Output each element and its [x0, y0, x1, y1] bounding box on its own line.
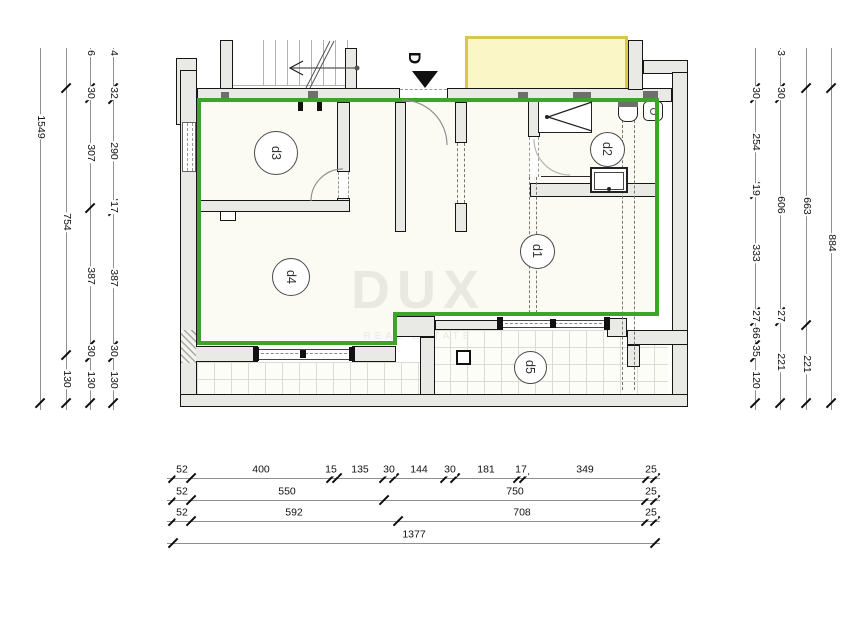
- dimension-label: 550: [277, 486, 297, 498]
- shower-tray: [538, 100, 592, 133]
- sliding-door-cap: [300, 350, 306, 358]
- dimension-label: 6: [84, 49, 96, 57]
- wall: [337, 102, 350, 172]
- stair-tread: [299, 40, 300, 86]
- dimension-label: 32: [107, 86, 119, 100]
- dimension-label: 25: [644, 464, 658, 476]
- sliding-door-cap: [349, 347, 355, 361]
- dimension-label: 30: [84, 344, 96, 358]
- dimension-label: 1549: [34, 114, 46, 139]
- dimension-label: 592: [284, 507, 304, 519]
- dimension-label: 130: [107, 370, 119, 390]
- room-label-d2: d2: [590, 132, 625, 167]
- dimension-label: 333: [749, 243, 761, 263]
- entrance-arrow-icon: [412, 71, 438, 88]
- dimension-label: 25: [644, 507, 658, 519]
- terrace-column: [456, 350, 471, 365]
- dimension-label: 15: [324, 464, 338, 476]
- dimension-chain-line: [167, 478, 660, 479]
- entrance-label: D: [404, 52, 424, 64]
- apartment-boundary: [197, 98, 201, 345]
- room-label-text: d1: [530, 244, 544, 258]
- wall: [455, 203, 467, 232]
- dimension-label: 19: [749, 183, 761, 197]
- wall: [220, 40, 233, 90]
- room-label-d1: d1: [520, 234, 555, 269]
- dimension-label: 181: [476, 464, 496, 476]
- dimension-label: 349: [575, 464, 595, 476]
- toilet-cistern: [618, 102, 638, 107]
- door-opening: [338, 172, 349, 198]
- dimension-chain-line: [167, 543, 660, 544]
- watermark-title: DUX: [346, 263, 491, 317]
- wall-section-hatch: [181, 330, 196, 363]
- dimension-label: 27: [749, 309, 761, 323]
- counter-line: [541, 176, 591, 177]
- dimension-label: 221: [800, 354, 812, 374]
- dimension-chain-line: [167, 500, 660, 501]
- dimension-label: 1377: [401, 529, 426, 541]
- apartment-boundary: [655, 98, 659, 316]
- dimension-label: 30: [84, 86, 96, 100]
- room-label-d5: d5: [514, 351, 547, 384]
- dimension-label: 30: [774, 86, 786, 100]
- dimension-label: 130: [84, 370, 96, 390]
- wall: [435, 320, 500, 330]
- dimension-label: 663: [800, 196, 812, 216]
- dashed-shaft-line: [464, 143, 465, 203]
- dimension-chain-line: [167, 521, 660, 522]
- dimension-label: 606: [774, 195, 786, 215]
- wall: [345, 48, 357, 90]
- dimension-label: 708: [512, 507, 532, 519]
- dimension-label: 884: [825, 233, 837, 253]
- dimension-label: 221: [774, 352, 786, 372]
- apartment-boundary: [197, 341, 397, 345]
- dimension-label: 30: [107, 344, 119, 358]
- bathroom-shelf: [643, 91, 658, 98]
- dimension-chain-line: [40, 48, 41, 410]
- floor-plan-canvas: DUX REAL ESTATE: [0, 0, 841, 631]
- terrace-tiles: [197, 362, 420, 395]
- window: [182, 122, 196, 172]
- wall: [607, 318, 627, 337]
- room-label-text: d2: [600, 142, 614, 156]
- stair-tread: [335, 40, 336, 86]
- dimension-label: 387: [107, 268, 119, 288]
- sliding-door-cap: [550, 319, 556, 328]
- stair-tread: [287, 40, 288, 86]
- dimension-label: 27: [774, 309, 786, 323]
- stair-edge: [233, 85, 357, 86]
- sliding-door-line: [256, 359, 352, 360]
- dimension-label: 30: [382, 464, 396, 476]
- room-label-text: d5: [523, 360, 537, 374]
- window-pane-line: [192, 123, 193, 171]
- dimension-label: 25: [644, 486, 658, 498]
- dimension-label: 400: [251, 464, 271, 476]
- stair-tread: [275, 40, 276, 86]
- wall-pier: [220, 211, 236, 221]
- dimension-label: 3: [774, 49, 786, 57]
- dimension-label: 52: [175, 507, 189, 519]
- dimension-label: 30: [749, 86, 761, 100]
- dimension-label: 144: [409, 464, 429, 476]
- wall: [672, 72, 688, 395]
- apartment-boundary: [199, 98, 659, 102]
- room-label-text: d4: [284, 270, 298, 284]
- wall: [393, 316, 435, 337]
- wall: [420, 337, 435, 395]
- dimension-label: 130: [60, 369, 72, 389]
- dimension-label: 52: [175, 464, 189, 476]
- dimension-label: 4: [107, 49, 119, 57]
- dimension-label: 307: [84, 143, 96, 163]
- neighbor-unit-highlight: [465, 36, 628, 95]
- dimension-label: 35: [749, 344, 761, 358]
- wall: [455, 102, 467, 143]
- dashed-shaft-line: [634, 120, 635, 390]
- wall: [180, 394, 688, 407]
- stair-tread: [323, 40, 324, 86]
- wall: [628, 40, 643, 90]
- dimension-label: 290: [107, 141, 119, 161]
- sliding-door-cap: [253, 347, 259, 361]
- apartment-boundary: [393, 312, 659, 316]
- dashed-shaft-line: [457, 143, 458, 203]
- dimension-chain-line: [831, 48, 832, 410]
- stair-tread: [311, 40, 312, 86]
- dimension-label: 387: [84, 266, 96, 286]
- dimension-label: 52: [175, 486, 189, 498]
- door-opening: [529, 137, 539, 177]
- dimension-label: 17: [514, 464, 528, 476]
- room-label-d4: d4: [272, 258, 310, 296]
- dimension-label: 254: [749, 132, 761, 152]
- wall: [627, 330, 688, 345]
- stair-tread: [263, 40, 264, 86]
- dashed-shaft-line: [622, 120, 623, 390]
- dimension-label: 750: [505, 486, 525, 498]
- stair-arrow-icon: [290, 61, 303, 75]
- room-label-d3: d3: [254, 131, 298, 175]
- wall: [352, 346, 396, 362]
- dimension-label: 30: [443, 464, 457, 476]
- wall: [395, 102, 406, 232]
- dimension-label: 66: [749, 326, 761, 340]
- dimension-label: 17: [107, 200, 119, 214]
- sliding-door-cap: [497, 317, 503, 330]
- dimension-label: 120: [749, 370, 761, 390]
- room-label-text: d3: [269, 146, 283, 160]
- sliding-door-cap: [604, 317, 610, 330]
- dimension-label: 135: [350, 464, 370, 476]
- window-pane-line: [187, 123, 188, 171]
- washing-machine-drum: [594, 172, 624, 190]
- dimension-label: 754: [60, 212, 72, 232]
